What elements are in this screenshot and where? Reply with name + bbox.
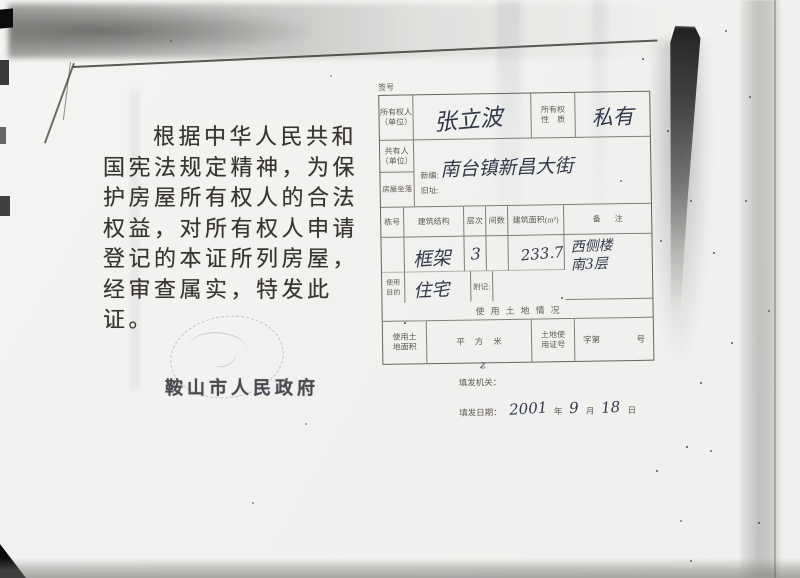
scan-smudge-top-dark <box>10 8 310 54</box>
land-cert-label-2: 用证号 <box>541 340 565 350</box>
scan-edge-mark-3 <box>0 127 6 144</box>
co-owner-label-cell: 共有人 （单位） <box>380 140 414 173</box>
floors-handwritten: 3 <box>471 244 481 263</box>
scan-fold-line-2 <box>63 62 71 120</box>
owner-label: 所有权人 <box>380 107 412 118</box>
land-cert-label: 土地使 <box>541 330 565 340</box>
scan-right-edge-line <box>774 0 776 578</box>
land-cert-prefix: 字第 <box>583 334 600 346</box>
structure-handwritten: 框架 <box>412 243 452 273</box>
note-label-cell: 附记: <box>471 271 493 301</box>
header-area: 建筑面积(m²) <box>508 205 564 236</box>
statement-line: 国宪法规定精神，为保 <box>103 153 378 184</box>
location-label: 房屋坐落 <box>382 184 412 194</box>
scan-smudge-top <box>8 4 680 58</box>
issuing-date-line: 填发日期： 2001 年 9 月 18 日 <box>459 398 636 419</box>
land-area-label-2: 地面积 <box>393 342 417 352</box>
remark-line-1: 西侧楼 <box>570 238 613 256</box>
land-cert-value-cell: 字第 号 <box>575 317 654 361</box>
owner-label-cell: 所有权人 （单位） <box>379 95 414 141</box>
year-unit: 年 <box>554 405 563 417</box>
purpose-value-cell: 住宅 <box>405 272 471 303</box>
scanned-certificate-page: 根据中华人民共和 国宪法规定精神，为保 护房屋所有权人的合法 权益，对所有权人申… <box>0 0 800 578</box>
remark-line-2: 南3层 <box>571 256 609 274</box>
statement-line: 权益，对所有权人申请 <box>103 214 378 245</box>
location-new-label: 新编: <box>420 171 438 181</box>
issuing-date-label: 填发日期： <box>459 406 502 419</box>
co-owner-label-unit: （单位） <box>381 156 413 167</box>
location-label-cell: 房屋坐落 <box>380 172 415 208</box>
purpose-label-cell: 使用 目的 <box>382 273 405 303</box>
owner-value-cell: 张立波 <box>413 94 532 141</box>
structure-cell: 框架 <box>404 237 465 273</box>
issue-year-handwritten: 2001 <box>508 398 547 419</box>
nature-value-handwritten: 私有 <box>591 100 634 132</box>
header-remark: 备注 <box>564 204 651 235</box>
area-handwritten: 233.76 <box>520 242 565 264</box>
registration-form: 签号 所有权人 （单位） 张立波 所有权 性质 私有 共有人 （单位） 房屋坐落 <box>376 77 671 434</box>
issuer-name: 鞍山市人民政府 <box>165 374 385 400</box>
registration-table: 所有权人 （单位） 张立波 所有权 性质 私有 共有人 （单位） 房屋坐落 <box>378 91 654 365</box>
issuing-org-handwritten-mark: ʑ <box>479 356 487 373</box>
location-new-handwritten: 南台镇新昌大街 <box>440 151 574 182</box>
scan-corner-mark <box>0 544 26 578</box>
owner-label-unit: （单位） <box>380 117 412 128</box>
issue-month-handwritten: 9 <box>569 399 580 418</box>
purpose-handwritten: 住宅 <box>413 275 450 302</box>
floors-cell: 3 <box>464 236 487 271</box>
land-cert-suffix: 号 <box>636 333 645 345</box>
purpose-label-2: 目的 <box>386 288 400 298</box>
serial-label: 签号 <box>378 82 394 93</box>
location-new-line: 新编: 南台镇新昌大街 <box>420 152 574 181</box>
nature-label: 所有权 <box>541 105 565 115</box>
land-area-label: 使用土 <box>392 332 416 342</box>
remark-cell: 西侧楼 南3层 <box>564 234 652 300</box>
ownership-nature-label-cell: 所有权 性质 <box>531 93 576 139</box>
land-cert-label-cell: 土地使 用证号 <box>532 318 576 362</box>
owner-name-handwritten: 张立波 <box>432 98 504 138</box>
scan-crease-horizontal <box>73 39 657 68</box>
rooms-cell <box>486 236 509 271</box>
month-unit: 月 <box>586 405 595 417</box>
scan-bottom-shadow <box>0 558 800 578</box>
co-owner-label: 共有人 <box>385 146 409 156</box>
location-value-cell: 新编: 南台镇新昌大街 旧址: <box>414 137 651 208</box>
statement-line: 根据中华人民共和 <box>103 122 378 153</box>
statement-line: 登记的本证所列房屋， <box>103 244 378 275</box>
header-rooms: 间数 <box>486 206 508 236</box>
statement-line: 护房屋所有权人的合法 <box>103 183 378 214</box>
header-structure: 建筑结构 <box>404 207 464 238</box>
scan-edge-mark-4 <box>0 196 10 216</box>
issuing-org-line: 填发机关： <box>459 376 502 389</box>
building-no-cell <box>381 238 405 273</box>
issue-day-handwritten: 18 <box>601 398 621 417</box>
note-label: 附记: <box>473 281 490 292</box>
certificate-statement: 根据中华人民共和 国宪法规定精神，为保 护房屋所有权人的合法 权益，对所有权人申… <box>103 122 378 336</box>
ownership-nature-value-cell: 私有 <box>575 92 650 138</box>
scan-edge-mark-2 <box>0 60 9 85</box>
scan-noise-speckles <box>0 0 2 2</box>
land-area-label-cell: 使用土 地面积 <box>383 320 428 364</box>
area-cell: 233.76 <box>508 235 565 271</box>
scan-right-shadow-band <box>740 0 780 578</box>
header-floors: 层次 <box>464 206 486 236</box>
day-unit: 日 <box>627 404 636 416</box>
issuing-org-label: 填发机关： <box>459 377 502 388</box>
scan-edge-mark-1 <box>0 8 13 28</box>
nature-label-2: 性质 <box>533 115 573 126</box>
scan-fold-line-1 <box>44 63 75 144</box>
land-area-unit-cell: 平方米 <box>427 319 533 364</box>
location-old-label: 旧址: <box>421 186 439 196</box>
header-building-no: 栋号 <box>381 208 404 238</box>
purpose-label: 使用 <box>386 278 400 288</box>
location-old-line: 旧址: <box>421 186 439 196</box>
